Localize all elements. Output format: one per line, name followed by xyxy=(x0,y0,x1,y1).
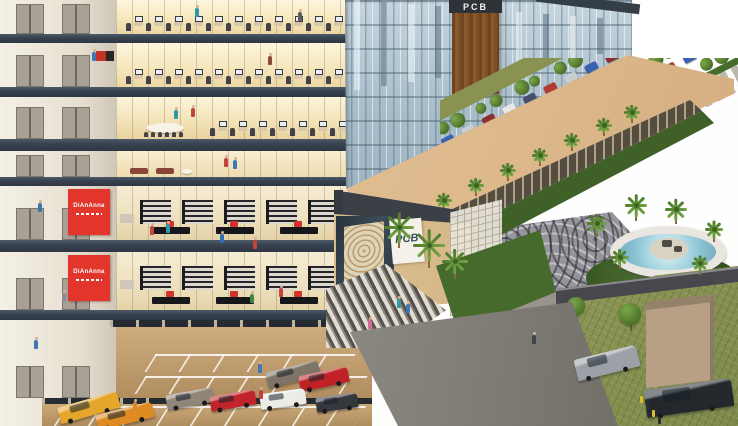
palm-crown xyxy=(634,203,639,208)
person-head xyxy=(299,9,302,12)
red-seat xyxy=(230,291,238,297)
monitor xyxy=(259,121,267,127)
person-head xyxy=(260,387,263,390)
car-windshield xyxy=(276,368,294,379)
palm-crown xyxy=(474,183,479,188)
office-desk xyxy=(258,127,267,131)
person xyxy=(233,160,237,169)
person xyxy=(259,390,263,399)
palm-crown xyxy=(630,110,635,115)
person-head xyxy=(259,361,262,364)
meeting-chair xyxy=(165,132,169,137)
monitor xyxy=(155,16,163,22)
monitor xyxy=(195,69,203,75)
office-desk xyxy=(314,22,323,26)
retail-sign-text: DiAnAnna xyxy=(68,203,110,209)
red-seat xyxy=(294,221,302,227)
floor-slab xyxy=(0,240,372,252)
office-desk xyxy=(214,22,223,26)
glass-mullions xyxy=(116,151,372,177)
office-desk xyxy=(134,75,143,79)
office-desk xyxy=(218,127,227,131)
person-head xyxy=(398,296,401,299)
retail-sign-text: DiAnAnna xyxy=(68,269,110,275)
person xyxy=(368,320,372,329)
monitor xyxy=(319,121,327,127)
office-chair xyxy=(186,23,191,31)
tree xyxy=(630,325,632,331)
red-seat xyxy=(294,291,302,297)
facade-accent-panel xyxy=(543,14,549,62)
elevator-door xyxy=(62,107,90,139)
meeting-chair xyxy=(158,132,162,137)
office-desk xyxy=(254,75,263,79)
person-head xyxy=(269,53,272,56)
office-desk xyxy=(174,75,183,79)
person xyxy=(62,293,66,302)
bollard xyxy=(652,410,655,417)
elevator-door xyxy=(62,4,90,34)
display-platform xyxy=(280,227,318,234)
monitor xyxy=(315,16,323,22)
palm-crown xyxy=(602,123,607,128)
elevator-door xyxy=(62,366,90,398)
meeting-chair xyxy=(172,132,176,137)
car-windshield xyxy=(268,393,284,402)
office-chair xyxy=(226,23,231,31)
parking-lines xyxy=(144,354,355,372)
office-desk xyxy=(338,127,347,131)
glass-mullions xyxy=(116,43,372,87)
person-head xyxy=(35,337,38,340)
office-chair xyxy=(166,23,171,31)
palm-crown xyxy=(506,168,511,173)
sofa xyxy=(156,168,174,174)
person-head xyxy=(39,200,42,203)
monitor xyxy=(235,69,243,75)
person-head xyxy=(167,221,170,224)
office-chair xyxy=(306,76,311,84)
office-desk xyxy=(274,22,283,26)
car-windshield xyxy=(218,394,234,403)
palm-crown xyxy=(397,225,402,230)
monitor xyxy=(239,121,247,127)
office-desk xyxy=(294,22,303,26)
car-windshield xyxy=(107,410,127,421)
display-platform xyxy=(152,297,190,304)
car-windshield xyxy=(69,401,90,413)
store-shelf xyxy=(140,266,171,290)
palm-crown xyxy=(570,138,575,143)
person xyxy=(150,226,154,235)
person xyxy=(406,304,410,313)
elevator-door xyxy=(16,366,44,398)
office-chair xyxy=(266,76,271,84)
elevator-door xyxy=(16,4,44,34)
monitor xyxy=(315,69,323,75)
elevator-door xyxy=(62,55,90,87)
retail-sign: DiAnAnna xyxy=(68,189,110,235)
person xyxy=(279,288,283,297)
monitor xyxy=(255,16,263,22)
person-head xyxy=(234,157,237,160)
person-head xyxy=(196,5,199,8)
office-chair xyxy=(250,128,255,136)
person xyxy=(258,364,262,373)
person xyxy=(195,8,199,17)
palm-crown xyxy=(538,153,543,158)
building-cutaway: DiAnAnnaDiAnAnna xyxy=(0,0,372,426)
bollard xyxy=(646,403,649,410)
office-desk xyxy=(298,127,307,131)
car-windshield xyxy=(661,387,691,403)
palm-crown xyxy=(453,259,458,264)
person xyxy=(250,294,254,303)
monitor xyxy=(135,16,143,22)
person-head xyxy=(151,223,154,226)
person-head xyxy=(407,301,410,304)
bollard xyxy=(640,396,643,403)
palm-crown xyxy=(442,198,447,203)
facade-accent-panel xyxy=(570,16,576,58)
person xyxy=(532,335,536,344)
palm-crown xyxy=(427,243,432,248)
office-chair xyxy=(270,128,275,136)
red-seat xyxy=(230,221,238,227)
office-desk xyxy=(294,75,303,79)
monitor xyxy=(275,16,283,22)
monitor xyxy=(279,121,287,127)
monitor xyxy=(175,16,183,22)
office-chair xyxy=(286,76,291,84)
fountain-rock xyxy=(662,240,672,247)
person-head xyxy=(192,105,195,108)
reception-counter xyxy=(120,280,134,289)
person xyxy=(191,108,195,117)
office-desk xyxy=(238,127,247,131)
office-chair xyxy=(126,76,131,84)
office-chair xyxy=(290,128,295,136)
monitor xyxy=(335,16,343,22)
person-head xyxy=(225,155,228,158)
elevator-door xyxy=(16,208,44,240)
facade-accent-panel xyxy=(597,18,603,54)
office-desk xyxy=(194,22,203,26)
person xyxy=(166,224,170,233)
office-chair xyxy=(226,76,231,84)
monitor xyxy=(335,69,343,75)
elevator-door xyxy=(16,55,44,87)
meeting-chair xyxy=(179,132,183,137)
office-chair xyxy=(330,128,335,136)
person xyxy=(268,56,272,65)
palm-crown xyxy=(618,255,623,260)
facade-accent-panel xyxy=(381,2,387,86)
person-head xyxy=(63,290,66,293)
person-head xyxy=(254,237,257,240)
person-head xyxy=(369,317,372,320)
display-platform xyxy=(280,297,318,304)
retail-sign-subtext xyxy=(76,279,102,281)
tower-sign: PCB xyxy=(449,0,502,13)
person xyxy=(298,12,302,21)
palm-crown xyxy=(698,261,703,266)
display-platform xyxy=(216,297,254,304)
office-chair xyxy=(146,23,151,31)
floor-slab xyxy=(0,177,372,186)
person-head xyxy=(134,399,137,402)
person xyxy=(34,340,38,349)
car-windshield xyxy=(324,396,338,404)
monitor xyxy=(135,69,143,75)
store-shelf xyxy=(224,266,255,290)
palm-crown xyxy=(674,207,679,212)
office-chair xyxy=(206,23,211,31)
monitor xyxy=(215,16,223,22)
facade-accent-panel xyxy=(354,0,360,90)
bollard xyxy=(658,417,661,424)
palm-crown xyxy=(712,227,717,232)
office-chair xyxy=(126,23,131,31)
office-desk xyxy=(194,75,203,79)
office-desk xyxy=(314,75,323,79)
office-chair xyxy=(186,76,191,84)
office-desk xyxy=(234,75,243,79)
office-chair xyxy=(326,76,331,84)
car-windshield xyxy=(175,392,191,401)
office-desk xyxy=(278,127,287,131)
office-desk xyxy=(254,22,263,26)
office-chair xyxy=(266,23,271,31)
office-chair xyxy=(310,128,315,136)
retail-sign-subtext xyxy=(76,213,102,215)
store-shelf xyxy=(182,266,213,290)
monitor xyxy=(299,121,307,127)
store-shelf xyxy=(266,200,297,224)
floor-slab xyxy=(0,139,372,151)
person xyxy=(397,299,401,308)
fountain-rock xyxy=(674,246,682,252)
display-platform xyxy=(152,227,190,234)
person-head xyxy=(221,231,224,234)
reception-counter xyxy=(120,214,134,223)
elevator-door xyxy=(16,278,44,310)
office-chair xyxy=(146,76,151,84)
tower-sign-text: PCB xyxy=(463,2,488,12)
car-wheel xyxy=(266,406,272,412)
sofa xyxy=(130,168,148,174)
monitor xyxy=(295,69,303,75)
floor-slab xyxy=(0,87,372,97)
office-chair xyxy=(166,76,171,84)
person xyxy=(38,203,42,212)
office-desk xyxy=(214,75,223,79)
office-desk xyxy=(318,127,327,131)
palm-crown xyxy=(595,221,600,226)
retail-sign: DiAnAnna xyxy=(68,255,110,301)
red-seat xyxy=(166,291,174,297)
person-head xyxy=(175,107,178,110)
person xyxy=(133,402,137,411)
office-desk xyxy=(334,75,343,79)
meeting-chair xyxy=(144,132,148,137)
monitor xyxy=(155,69,163,75)
utility-shed xyxy=(646,294,714,388)
facade-accent-panel xyxy=(408,4,414,82)
wall-artwork xyxy=(96,51,114,61)
person xyxy=(174,110,178,119)
monitor xyxy=(235,16,243,22)
car-windshield xyxy=(586,354,608,368)
office-chair xyxy=(210,128,215,136)
office-chair xyxy=(230,128,235,136)
office-chair xyxy=(306,23,311,31)
person xyxy=(92,52,96,61)
office-desk xyxy=(134,22,143,26)
office-desk xyxy=(174,22,183,26)
office-desk xyxy=(334,22,343,26)
monitor xyxy=(175,69,183,75)
office-chair xyxy=(206,76,211,84)
person-head xyxy=(533,332,536,335)
floor-slab xyxy=(0,310,372,320)
architectural-rendering-canvas: PCB DiAnAnnaDiAnAnna PCB xyxy=(0,0,738,426)
person xyxy=(253,240,257,249)
office-chair xyxy=(286,23,291,31)
store-shelf xyxy=(182,200,213,224)
office-chair xyxy=(246,76,251,84)
office-chair xyxy=(246,23,251,31)
person-head xyxy=(93,49,96,52)
store-shelf xyxy=(224,200,255,224)
monitor xyxy=(215,69,223,75)
monitor xyxy=(255,69,263,75)
elevator-door xyxy=(16,107,44,139)
person xyxy=(220,234,224,243)
person-head xyxy=(251,291,254,294)
lounge-table xyxy=(182,169,192,174)
meeting-chair xyxy=(151,132,155,137)
office-desk xyxy=(154,22,163,26)
office-desk xyxy=(154,75,163,79)
elevator-door xyxy=(16,155,44,177)
person xyxy=(224,158,228,167)
car-windshield xyxy=(308,373,325,383)
office-desk xyxy=(234,22,243,26)
person-head xyxy=(280,285,283,288)
floor-slab xyxy=(0,34,372,43)
tree xyxy=(619,303,641,325)
office-desk xyxy=(274,75,283,79)
office-chair xyxy=(326,23,331,31)
monitor xyxy=(219,121,227,127)
elevator-door xyxy=(62,155,90,177)
monitor xyxy=(275,69,283,75)
